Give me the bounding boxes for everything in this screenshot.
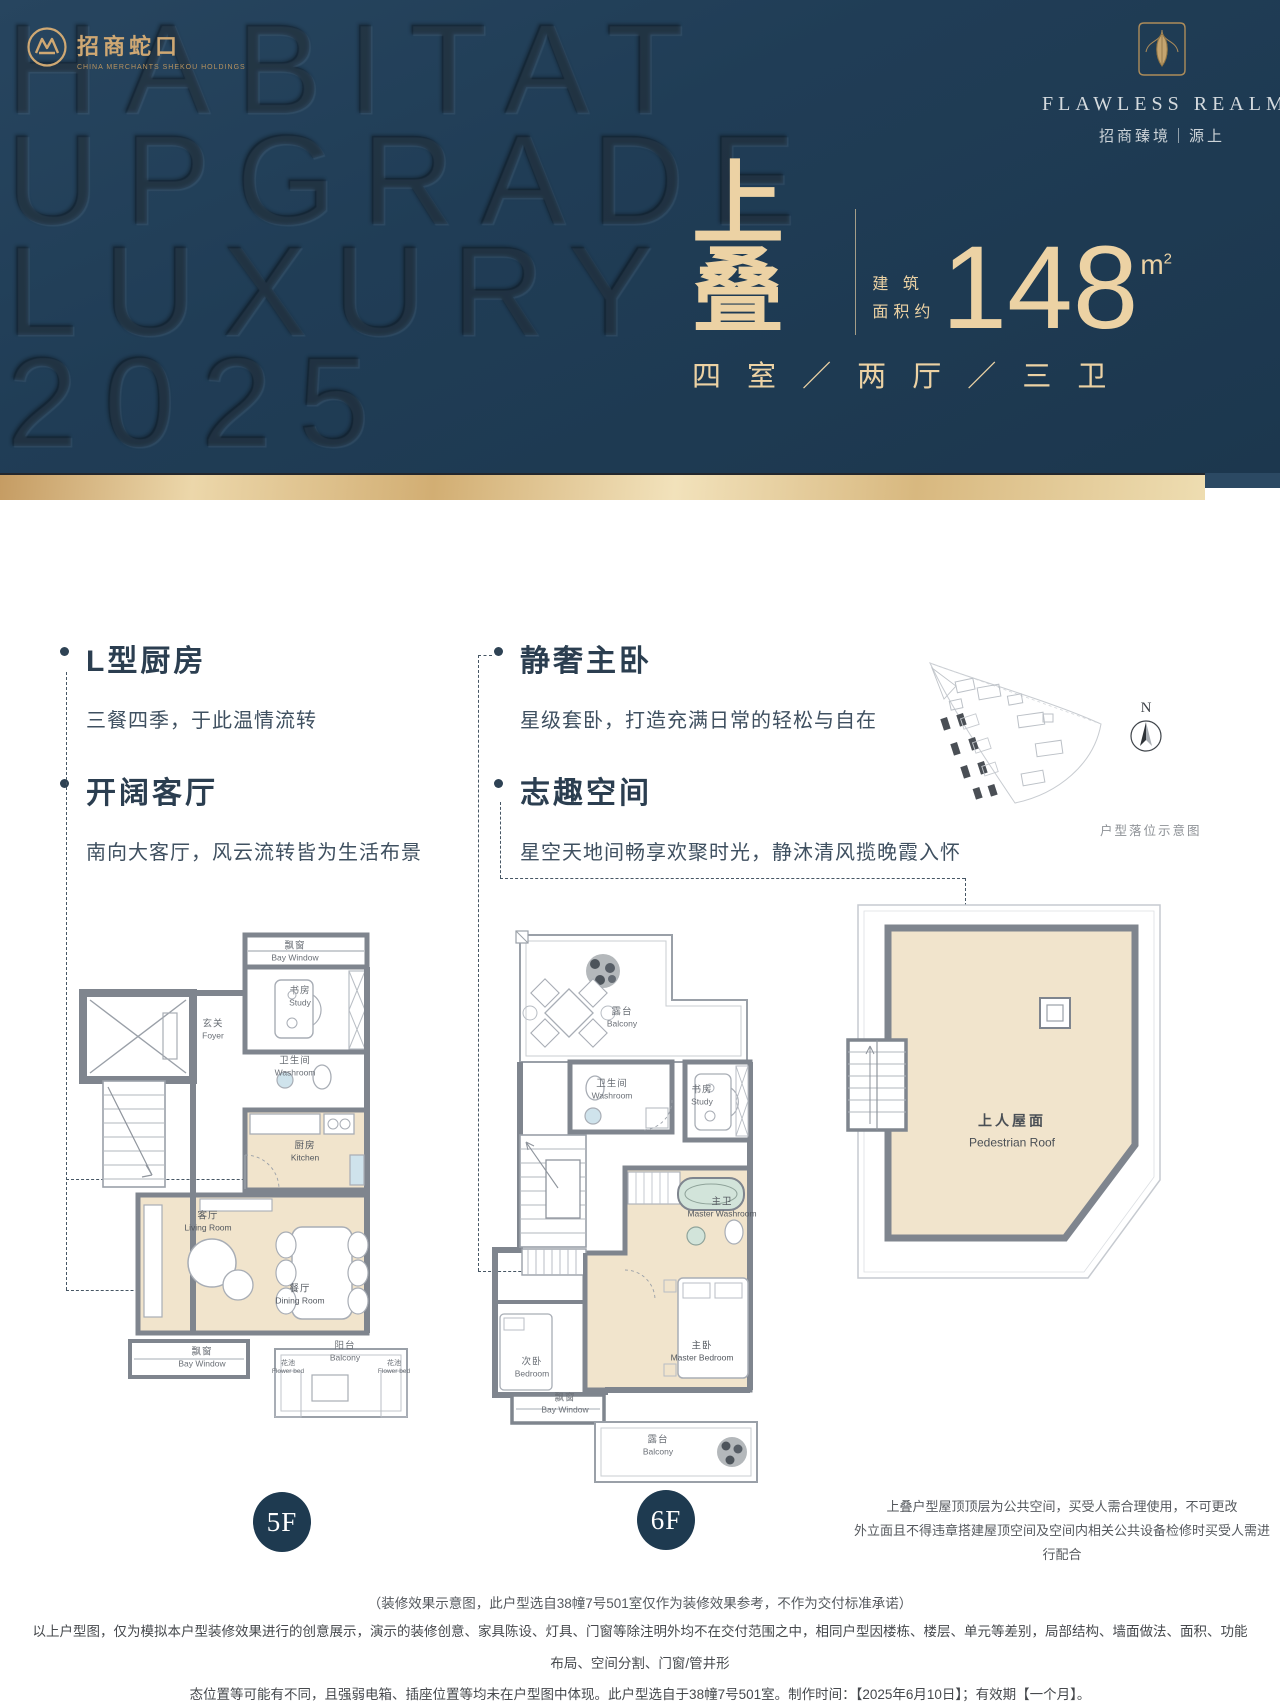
room-label-living-room: 客厅Living Room [184, 1210, 231, 1233]
room-label-flower-bed: 花池Flower bed [272, 1359, 304, 1377]
svg-text:N: N [1141, 700, 1152, 716]
room-label-pedestrian-roof: 上人屋面Pedestrian Roof [969, 1111, 1055, 1150]
flawless-emblem-icon [1136, 65, 1188, 82]
siteplan-caption: 户型落位示意图 [1100, 820, 1202, 839]
title-divider [855, 209, 857, 335]
legal-disclaimer: 以上户型图，仅为模拟本户型装修效果进行的创意展示，演示的装修创意、家具陈设、灯具… [30, 1616, 1250, 1706]
room-label-study: 书房Study [691, 1084, 713, 1107]
feature-living: 开阔客厅 南向大客厅，风云流转皆为生活布景 [86, 768, 422, 865]
room-label-foyer: 玄关Foyer [202, 1018, 224, 1041]
room-label-washroom: 卫生间Washroom [592, 1078, 633, 1101]
unit-title-block: 上叠 建 筑 面积约 148 m2 四 室 ／ 两 厅 ／ 三 卫 [692, 162, 1172, 395]
area-value: 148 [941, 240, 1138, 337]
feature-desc: 星级套卧，打造充满日常的轻松与自在 [520, 704, 877, 733]
brand-cmsk: 招商蛇口 CHINA MERCHANTS SHEKOU HOLDINGS [26, 26, 246, 73]
room-label-bedroom: 次卧Bedroom [515, 1356, 550, 1379]
room-label-bay-window: 飘窗Bay Window [178, 1346, 225, 1369]
brand-flawless-zh: 招商臻境｜源上 [1042, 125, 1280, 146]
floor-badge-5f: 5F [253, 1492, 311, 1552]
brand-cmsk-sub: CHINA MERCHANTS SHEKOU HOLDINGS [77, 64, 246, 71]
feature-master: 静奢主卧 星级套卧，打造充满日常的轻松与自在 [520, 636, 877, 733]
decoration-note: （装修效果示意图，此户型选自38幢7号501室仅作为装修效果参考，不作为交付标准… [0, 1592, 1280, 1612]
room-label-bay-window: 飘窗Bay Window [271, 940, 318, 963]
tree-icon [717, 1437, 747, 1467]
bullet-dot [60, 779, 69, 788]
bullet-dot [60, 647, 69, 656]
room-label-dining-room: 餐厅Dining Room [275, 1283, 324, 1306]
brand-flawless-en: FLAWLESS REALM [1042, 93, 1280, 116]
bullet-dot [494, 647, 503, 656]
floor-badge-6f: 6F [637, 1490, 695, 1550]
feature-title: L型厨房 [86, 636, 317, 680]
unit-layout-line: 四 室 ／ 两 厅 ／ 三 卫 [692, 353, 1172, 395]
connector-line [478, 655, 492, 656]
feature-kitchen: L型厨房 三餐四季，于此温情流转 [86, 636, 317, 733]
room-label-flower-bed: 花池Flower bed [378, 1359, 410, 1377]
siteplan-drawing [858, 596, 1108, 816]
roof-usage-note: 上叠户型屋顶顶层为公共空间，买受人需合理使用，不可更改 外立面且不得违章搭建屋顶… [850, 1495, 1274, 1567]
unit-type-label: 上叠 [692, 162, 845, 337]
feature-desc: 三餐四季，于此温情流转 [86, 704, 317, 733]
room-label-master-washroom: 主卫Master Washroom [687, 1196, 756, 1219]
area-prefix: 建 筑 面积约 [872, 271, 935, 327]
poster-page: HABITAT UPGRADE LUXURY 2025 招商蛇口 CHINA M… [0, 0, 1280, 1706]
room-label-balcony: 露台Balcony [643, 1434, 673, 1457]
roofplan-drawing [830, 880, 1190, 1305]
bullet-dot [494, 779, 503, 788]
room-label-balcony: 露台Balcony [607, 1006, 637, 1029]
feature-title: 开阔客厅 [86, 768, 422, 812]
feature-title: 静奢主卧 [520, 636, 877, 680]
room-label-washroom: 卫生间Washroom [275, 1055, 316, 1078]
area-unit: m2 [1140, 249, 1172, 281]
room-label-bay-window: 飘窗Bay Window [541, 1392, 588, 1415]
gold-divider-bar [0, 473, 1205, 500]
brand-flawless-realm: FLAWLESS REALM 招商臻境｜源上 [1042, 20, 1280, 146]
room-label-kitchen: 厨房Kitchen [291, 1140, 319, 1163]
hero-banner: HABITAT UPGRADE LUXURY 2025 招商蛇口 CHINA M… [0, 0, 1280, 473]
brand-cmsk-name: 招商蛇口 [77, 29, 246, 61]
cmsk-logo-icon [26, 26, 68, 73]
room-label-study: 书房Study [289, 985, 311, 1008]
room-label-balcony: 阳台Balcony [330, 1340, 360, 1363]
floorplan-6f-drawing [440, 850, 780, 1500]
compass-icon: N [1124, 698, 1168, 765]
navy-corner-stub [1205, 473, 1280, 488]
room-label-master-bedroom: 主卧Master Bedroom [671, 1340, 734, 1363]
floorplan-5f-drawing [60, 855, 420, 1435]
